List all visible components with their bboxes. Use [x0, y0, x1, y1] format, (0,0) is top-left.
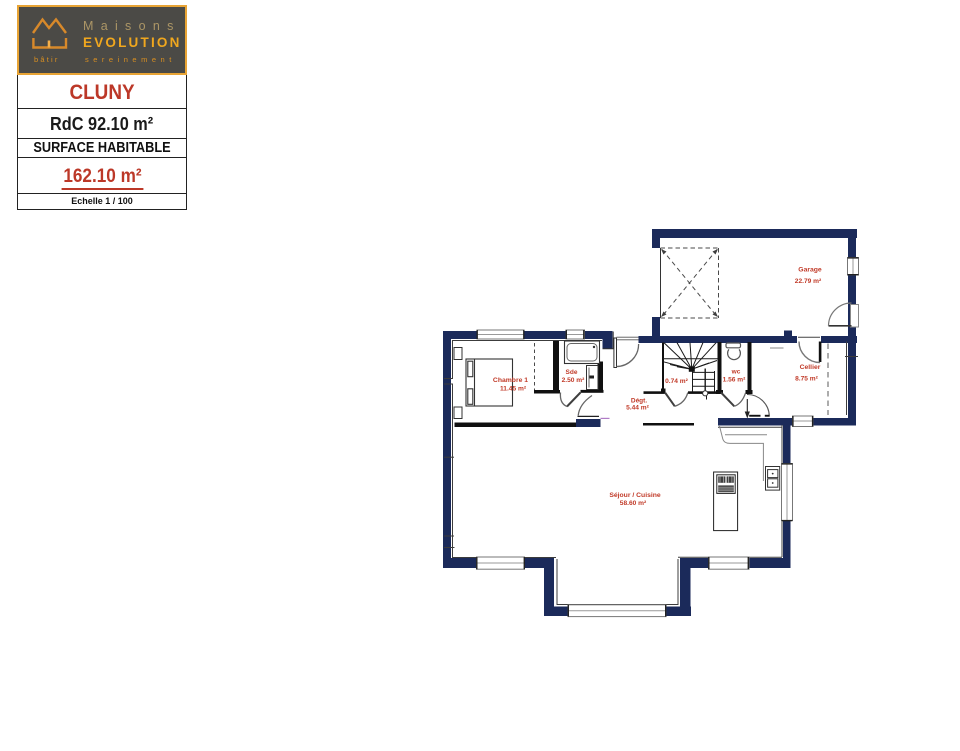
- svg-text:2.50 m²: 2.50 m²: [562, 377, 586, 384]
- svg-text:Dégt.: Dégt.: [631, 397, 647, 404]
- svg-text:22.79 m²: 22.79 m²: [795, 278, 822, 285]
- svg-text:8.75 m²: 8.75 m²: [795, 376, 819, 383]
- svg-text:wc: wc: [731, 369, 741, 376]
- svg-text:Cellier: Cellier: [800, 364, 821, 371]
- svg-text:11.45 m²: 11.45 m²: [500, 386, 527, 393]
- svg-text:0.74 m²: 0.74 m²: [665, 378, 689, 385]
- svg-text:Garage: Garage: [798, 267, 822, 274]
- svg-text:5.44 m²: 5.44 m²: [626, 405, 650, 412]
- svg-text:Chambre 1: Chambre 1: [493, 377, 528, 384]
- svg-text:Séjour / Cuisine: Séjour / Cuisine: [609, 492, 661, 499]
- svg-text:Sde: Sde: [566, 369, 578, 376]
- svg-text:58.60 m²: 58.60 m²: [620, 500, 647, 507]
- svg-text:1.56 m²: 1.56 m²: [723, 377, 747, 384]
